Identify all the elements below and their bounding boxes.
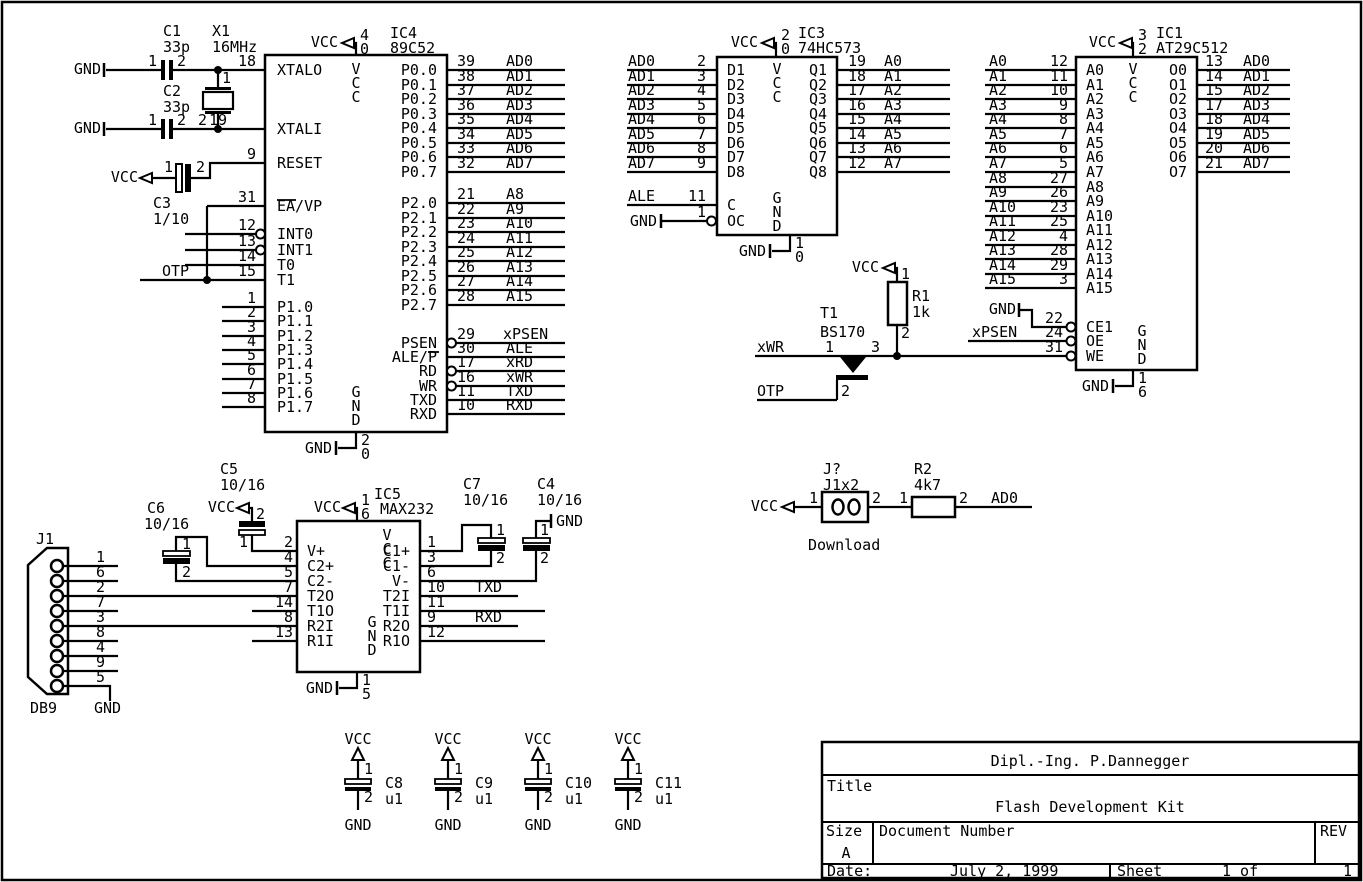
ic4-vcc-label: VCC [311, 33, 338, 51]
ic1-pin-name-WE: WE [1086, 347, 1104, 365]
junction-dot [203, 276, 211, 284]
ic1-pin-name-O7: O7 [1169, 163, 1187, 181]
ic1-gnd-wire [1115, 370, 1133, 386]
jp-pin-1: 1 [809, 489, 818, 507]
c8-val: u1 [385, 790, 403, 808]
r1-pin-2: 2 [901, 324, 910, 342]
inverter-bubble-icon [256, 230, 265, 239]
vcc-arrow-icon [343, 503, 355, 513]
jp-body [822, 492, 868, 522]
ic1-vcc-label: VCC [1089, 33, 1116, 51]
ic3-pin-num-12: 12 [848, 154, 866, 172]
net-label-AD7: AD7 [1243, 154, 1270, 172]
ic1-pin-num-31: 31 [1045, 338, 1063, 356]
x1-pin-1: 1 [222, 69, 231, 87]
inverter-bubble-icon [1067, 337, 1076, 346]
vcc-up-arrow-icon [622, 748, 634, 760]
c2-val: 33p [163, 98, 190, 116]
t1-mosfet-arrow-icon [840, 357, 866, 373]
vcc-arrow-icon [762, 38, 774, 48]
vcc-arrow-icon [140, 173, 152, 183]
c10-val: u1 [565, 790, 583, 808]
c11-pin-1: 1 [634, 760, 643, 778]
net-label-txd: TXD [475, 578, 502, 596]
c9-val: u1 [475, 790, 493, 808]
ic4-gnd-pin-1: 0 [361, 445, 370, 463]
c11-val: u1 [655, 790, 673, 808]
titleblock-date: July 2, 1999 [950, 862, 1058, 880]
ic4-part: 89C52 [390, 39, 435, 57]
r2-body [912, 497, 955, 517]
inverter-bubble-icon [447, 339, 456, 348]
ic4-vcc-inside-2: C [351, 88, 360, 106]
ic4-pin-num-32: 32 [457, 154, 475, 172]
ic4-pin-name-T1: T1 [277, 271, 295, 289]
inverter-bubble-icon [707, 217, 716, 226]
ic5-vcc-pin-1: 6 [361, 505, 370, 523]
net-label-ad0-dl: AD0 [991, 489, 1018, 507]
c8-vcc-label: VCC [344, 730, 371, 748]
ic5-gnd-pin-1: 5 [362, 685, 371, 703]
j1-contact-icon [51, 590, 63, 602]
junction-dot [214, 125, 222, 133]
c9-vcc-label: VCC [434, 730, 461, 748]
ic3-vcc-label: VCC [731, 33, 758, 51]
jp-pin-2: 2 [872, 489, 881, 507]
titleblock-rev-label: REV [1320, 822, 1347, 840]
ic3-pin-num-1: 1 [697, 203, 706, 221]
r1-pin-1: 1 [901, 265, 910, 283]
gnd-label-c1: GND [74, 60, 101, 78]
ic5-pin-name-R1O: R1O [383, 632, 410, 650]
vcc-arrow-icon [883, 263, 895, 273]
j1-pin-num: 5 [96, 668, 105, 686]
c6-pin-2: 2 [182, 563, 191, 581]
c11-plate [615, 779, 641, 784]
j1-contact-icon [51, 575, 63, 587]
ic4-pin-name-XTALO: XTALO [277, 61, 322, 79]
ic3-vcc-pin-1: 0 [781, 40, 790, 58]
titleblock-size-label: Size [826, 822, 862, 840]
c5-pin-1: 1 [239, 533, 248, 551]
titleblock-title-label: Title [827, 777, 872, 795]
ic4-gnd-inside-2: D [351, 411, 360, 429]
r1-vcc-label: VCC [852, 258, 879, 276]
ic3-pin-name-OC: OC [727, 212, 745, 230]
c2-plate [161, 119, 165, 139]
c3-pin-1: 1 [164, 158, 173, 176]
x1-body [203, 92, 233, 109]
c6-pin-1: 1 [182, 535, 191, 553]
x1-val: 16MHz [212, 38, 257, 56]
j1-contact-icon [51, 665, 63, 677]
c4-pin-2: 2 [540, 549, 549, 567]
ic4-pin-num-28: 28 [457, 287, 475, 305]
x1-pin-2: 2 [198, 111, 207, 129]
ic4-pin-num-31: 31 [238, 188, 256, 206]
titleblock-sheet-label: Sheet [1117, 862, 1162, 880]
c10-gnd-label: GND [524, 816, 551, 834]
ic4-pin-name-RXD: RXD [410, 405, 437, 423]
c4-pin-1: 1 [540, 521, 549, 539]
c5-pin-2: 2 [256, 505, 265, 523]
inverter-bubble-icon [447, 367, 456, 376]
vcc-up-arrow-icon [532, 748, 544, 760]
jumper-pin-icon [849, 500, 860, 515]
ic5-gnd-label: GND [306, 679, 333, 697]
gnd-label-ce1: GND [989, 300, 1016, 318]
net-label-A15: A15 [506, 287, 533, 305]
ic4-gnd-label: GND [305, 439, 332, 457]
vcc-arrow-icon [237, 503, 249, 513]
ic5-gnd-wire [339, 672, 357, 688]
ic5-pin-name-R1I: R1I [307, 632, 334, 650]
net-label-xpsen: xPSEN [972, 323, 1017, 341]
titleblock-title: Flash Development Kit [995, 798, 1185, 816]
c3-pin-2: 2 [196, 158, 205, 176]
c1-plate2 [169, 60, 173, 80]
c2-pin-1: 1 [148, 111, 157, 129]
net-label-AD7: AD7 [628, 154, 655, 172]
ic3-gnd-inside-2: D [772, 217, 781, 235]
c4-gnd-label: GND [556, 512, 583, 530]
c8-pin-2: 2 [364, 788, 373, 806]
vcc-up-arrow-icon [352, 748, 364, 760]
c11-pin-2: 2 [634, 788, 643, 806]
titleblock-sheet-of: 1 of [1222, 862, 1258, 880]
ic1-pin-name-A15: A15 [1086, 279, 1113, 297]
jp-part: J1x2 [823, 476, 859, 494]
page-border [2, 2, 1361, 880]
c6-val: 10/16 [144, 515, 189, 533]
c3-plate2 [185, 164, 191, 192]
t1-part: BS170 [820, 323, 865, 341]
j1-contact-icon [51, 635, 63, 647]
ic4-pin-name-RESET: RESET [277, 154, 322, 172]
vcc-arrow-icon [342, 38, 354, 48]
net-label-A15: A15 [989, 270, 1016, 288]
ic3-pin-num-9: 9 [697, 154, 706, 172]
ic4-pin-name-P1.7: P1.7 [277, 398, 313, 416]
ic3-vcc-inside-2: C [772, 88, 781, 106]
otp-label-2: OTP [757, 382, 784, 400]
c2-plate2 [169, 119, 173, 139]
titleblock-date-label: Date: [827, 862, 872, 880]
inverter-bubble-icon [1067, 352, 1076, 361]
schematic-canvas: IC489C52VCC40VCCGNDGND20XTALO18XTALI19RE… [0, 0, 1363, 882]
vcc-arrow-icon [782, 502, 794, 512]
ic5-part: MAX232 [380, 500, 434, 518]
net-label-rxd: RXD [475, 608, 502, 626]
vcc-up-arrow-icon [442, 748, 454, 760]
c9-pin-1: 1 [454, 760, 463, 778]
c7-val: 10/16 [463, 491, 508, 509]
net-label-AD7: AD7 [506, 154, 533, 172]
ic4-pin-name-P2.7: P2.7 [401, 296, 437, 314]
schematic-page: IC489C52VCC40VCCGNDGND20XTALO18XTALI19RE… [0, 0, 1363, 882]
t1-ref: T1 [820, 304, 838, 322]
c7-pin-2: 2 [496, 549, 505, 567]
inverter-bubble-icon [447, 382, 456, 391]
c9-gnd-label: GND [434, 816, 461, 834]
ic1-gnd-inside-2: D [1137, 350, 1146, 368]
r2-val: 4k7 [914, 476, 941, 494]
ic3-gnd-label: GND [739, 242, 766, 260]
ic1-vcc-pin-1: 2 [1138, 40, 1147, 58]
c8-plate [345, 779, 371, 784]
j1-contact-icon [51, 620, 63, 632]
c5-plate [239, 521, 265, 527]
c3-val: 1/10 [153, 210, 189, 228]
c11-vcc-label: VCC [614, 730, 641, 748]
c4-val: 10/16 [537, 491, 582, 509]
titleblock-author: Dipl.-Ing. P.Dannegger [991, 752, 1190, 770]
gnd-label-oc: GND [630, 212, 657, 230]
inverter-bubble-icon [1067, 323, 1076, 332]
t1-gate-bar [836, 375, 868, 380]
dl-vcc-label: VCC [751, 497, 778, 515]
ic3-pin-name-Q8: Q8 [809, 163, 827, 181]
dl-caption: Download [808, 536, 880, 554]
ic1-vcc-inside-2: C [1128, 88, 1137, 106]
gnd-label-c2: GND [74, 119, 101, 137]
c1-pin-1: 1 [148, 52, 157, 70]
ic1-pin-num-21: 21 [1205, 154, 1223, 172]
j1-type: DB9 [30, 699, 57, 717]
j1-ref: J1 [36, 530, 54, 548]
c10-vcc-label: VCC [524, 730, 551, 748]
ic4-pin-num-8: 8 [247, 389, 256, 407]
ic5-gnd-inside-2: D [367, 641, 376, 659]
c10-plate [525, 779, 551, 784]
ic4-gnd-wire [338, 432, 356, 448]
ic4-pin-name-XTALI: XTALI [277, 120, 322, 138]
c10-pin-1: 1 [544, 760, 553, 778]
ic3-gnd-wire [772, 235, 790, 251]
c8-gnd-label: GND [344, 816, 371, 834]
r2-pin-2: 2 [959, 489, 968, 507]
ic1-vcc-wire [1132, 43, 1133, 57]
c7-pin-1: 1 [496, 521, 505, 539]
ic4-pin-num-10: 10 [457, 396, 475, 414]
j1-contact-icon [51, 560, 63, 572]
c9-pin-2: 2 [454, 788, 463, 806]
c1-plate [161, 60, 165, 80]
ic4-pin-num-9: 9 [247, 145, 256, 163]
ic3-gnd-pin-1: 0 [795, 248, 804, 266]
c9-plate [435, 779, 461, 784]
j1-gnd-label: GND [94, 699, 121, 717]
r1-val: 1k [912, 303, 930, 321]
j1-contact-icon [51, 605, 63, 617]
titleblock-size: A [841, 844, 850, 862]
net-label-RXD: RXD [506, 396, 533, 414]
j1-contact-icon [51, 650, 63, 662]
ic4-vcc-pin-1: 0 [360, 40, 369, 58]
c11-gnd-label: GND [614, 816, 641, 834]
t1-pin-3: 3 [871, 338, 880, 356]
ic3-pin-name-D8: D8 [727, 163, 745, 181]
vcc-arrow-icon [1120, 38, 1132, 48]
j1-contact-icon [51, 680, 63, 692]
r2-pin-1: 1 [899, 489, 908, 507]
vcc-label-c3: VCC [111, 168, 138, 186]
ic4-pin-name-P0.7: P0.7 [401, 163, 437, 181]
inverter-bubble-icon [256, 246, 265, 255]
net-label-xwr: xWR [757, 338, 785, 356]
ic1-pin-num-3: 3 [1059, 270, 1068, 288]
jumper-pin-icon [833, 500, 844, 515]
ic1-gnd-label: GND [1082, 377, 1109, 395]
c5-vcc-label: VCC [208, 498, 235, 516]
titleblock-doc-label: Document Number [879, 822, 1014, 840]
ic1-gnd-pin-1: 6 [1138, 383, 1147, 401]
r1-body [888, 282, 907, 325]
c10-pin-2: 2 [544, 788, 553, 806]
net-label-ALE: ALE [628, 187, 655, 205]
net-label-A7: A7 [884, 154, 902, 172]
c8-pin-1: 1 [364, 760, 373, 778]
t1-pin-2: 2 [841, 382, 850, 400]
c1-val: 33p [163, 38, 190, 56]
ic5-vcc-label: VCC [314, 498, 341, 516]
titleblock-sheet-total: 1 [1343, 862, 1352, 880]
c3-plate [176, 164, 182, 192]
c5-val: 10/16 [220, 476, 265, 494]
